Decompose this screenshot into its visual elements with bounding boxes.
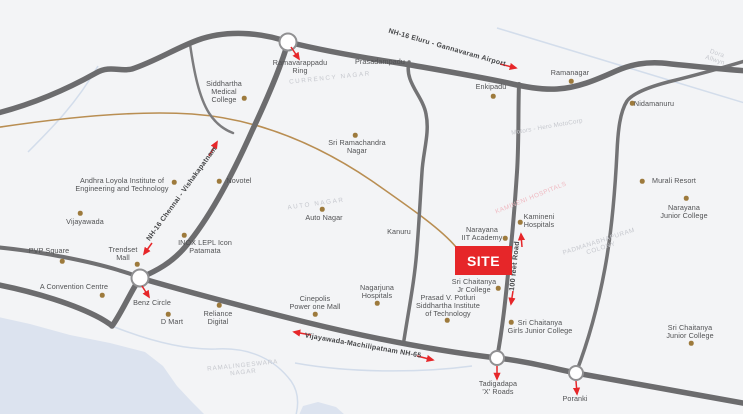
landmark-dot <box>689 341 694 346</box>
landmark-label: A Convention Centre <box>40 283 108 291</box>
site-marker: SITE <box>455 246 512 275</box>
landmark-dot <box>509 320 514 325</box>
landmark-label: Siddhartha Medical College <box>206 80 242 104</box>
landmark-label: Prasadampadu <box>355 58 405 66</box>
junction-poranki <box>569 366 583 380</box>
landmark-dot <box>217 179 222 184</box>
river-water <box>0 316 205 414</box>
landmark-dot <box>491 94 496 99</box>
junction-ramavarappadu-ring <box>280 34 297 51</box>
pond-water <box>299 402 345 414</box>
landmark-label: Andhra Loyola Institute of Engineering a… <box>75 177 168 193</box>
landmark-label: Tadigadapa 'X' Roads <box>479 380 517 396</box>
landmark-dot <box>445 318 450 323</box>
landmark-label: Kamineni Hospitals <box>524 213 555 229</box>
landmark-dot <box>242 96 247 101</box>
landmark-dot <box>100 293 105 298</box>
arrow-nh16-down <box>144 243 152 254</box>
landmark-label: Trendset Mall <box>109 246 138 262</box>
landmark-dot <box>172 180 177 185</box>
landmark-dot <box>217 303 222 308</box>
landmark-dot <box>60 259 65 264</box>
landmark-label: Vijayawada <box>66 218 104 226</box>
landmark-label: Narayana IIT Academy <box>462 226 503 242</box>
junction-benz-circle <box>132 270 149 287</box>
landmark-label: Enkipadu <box>476 83 507 91</box>
landmark-dot <box>313 312 318 317</box>
landmark-dot <box>503 236 508 241</box>
landmark-label: Kanuru <box>387 228 411 236</box>
landmark-label: Reliance Digital <box>204 310 233 326</box>
location-map: NH-16 Eluru - Gannavaram Airport NH-16 C… <box>0 0 743 414</box>
landmark-label: Sri Chaitanya Jr College <box>452 278 496 294</box>
landmark-label: Nidamanuru <box>634 100 674 108</box>
arrow-100ft-down <box>511 291 513 304</box>
landmark-dot <box>166 312 171 317</box>
landmark-label: PVP Square <box>29 247 69 255</box>
landmark-label: Benz Circle <box>133 299 171 307</box>
landmark-label: Novotel <box>226 177 251 185</box>
landmark-label: Sri Chaitanya Girls Junior College <box>508 319 573 335</box>
landmark-label: Prasad V. Potluri Siddhartha Institute o… <box>416 294 480 318</box>
landmark-dot <box>640 179 645 184</box>
landmark-label: Sri Chaitanya Junior College <box>666 324 713 340</box>
landmark-dot <box>684 196 689 201</box>
landmark-label: Poranki <box>562 395 587 403</box>
landmark-dot <box>135 262 140 267</box>
arrow-poranki <box>576 381 577 394</box>
landmark-dot <box>375 301 380 306</box>
landmark-label: Auto Nagar <box>305 214 342 222</box>
landmark-dot <box>78 211 83 216</box>
landmark-dot <box>518 220 523 225</box>
landmark-label: INOX LEPL Icon Patamata <box>178 239 232 255</box>
landmark-dot <box>630 101 635 106</box>
landmark-label: Cinepolis Power one Mall <box>290 295 341 311</box>
landmark-dot <box>569 79 574 84</box>
landmark-label: Ramanagar <box>551 69 589 77</box>
arrow-benz-circle <box>142 286 149 297</box>
arrow-100ft-up <box>521 234 522 247</box>
landmark-dot <box>320 207 325 212</box>
landmark-label: Narayana Junior College <box>660 204 707 220</box>
junction-tadigadapa <box>490 351 504 365</box>
landmark-label: Murali Resort <box>652 177 696 185</box>
landmark-label: Sri Ramachandra Nagar <box>328 139 385 155</box>
landmark-dot <box>182 233 187 238</box>
road-nh16-west <box>0 33 288 114</box>
landmark-label: D Mart <box>161 318 183 326</box>
landmark-dot <box>496 286 501 291</box>
landmark-label: Nagarjuna Hospitals <box>360 284 394 300</box>
road-100-feet <box>497 84 519 358</box>
landmark-label: Ramavarappadu Ring <box>273 59 327 75</box>
landmark-dot <box>353 133 358 138</box>
